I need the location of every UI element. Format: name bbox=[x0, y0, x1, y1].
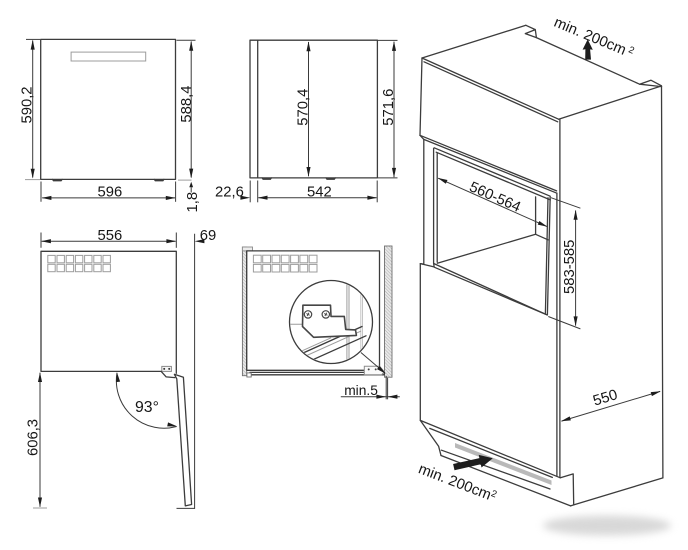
svg-text:1,8: 1,8 bbox=[185, 192, 201, 213]
svg-text:542: 542 bbox=[307, 184, 332, 200]
svg-text:588,4: 588,4 bbox=[179, 86, 195, 123]
svg-text:22,6: 22,6 bbox=[215, 184, 244, 200]
svg-text:556: 556 bbox=[98, 228, 123, 244]
svg-text:606,3: 606,3 bbox=[25, 419, 41, 456]
svg-text:93°: 93° bbox=[135, 399, 159, 416]
svg-text:590,2: 590,2 bbox=[19, 86, 35, 123]
svg-text:570,4: 570,4 bbox=[296, 89, 312, 126]
svg-text:571,6: 571,6 bbox=[381, 89, 397, 126]
svg-text:69: 69 bbox=[200, 228, 216, 244]
svg-text:583-585: 583-585 bbox=[562, 240, 578, 294]
svg-text:min.5: min.5 bbox=[344, 383, 378, 398]
svg-text:596: 596 bbox=[98, 185, 123, 201]
